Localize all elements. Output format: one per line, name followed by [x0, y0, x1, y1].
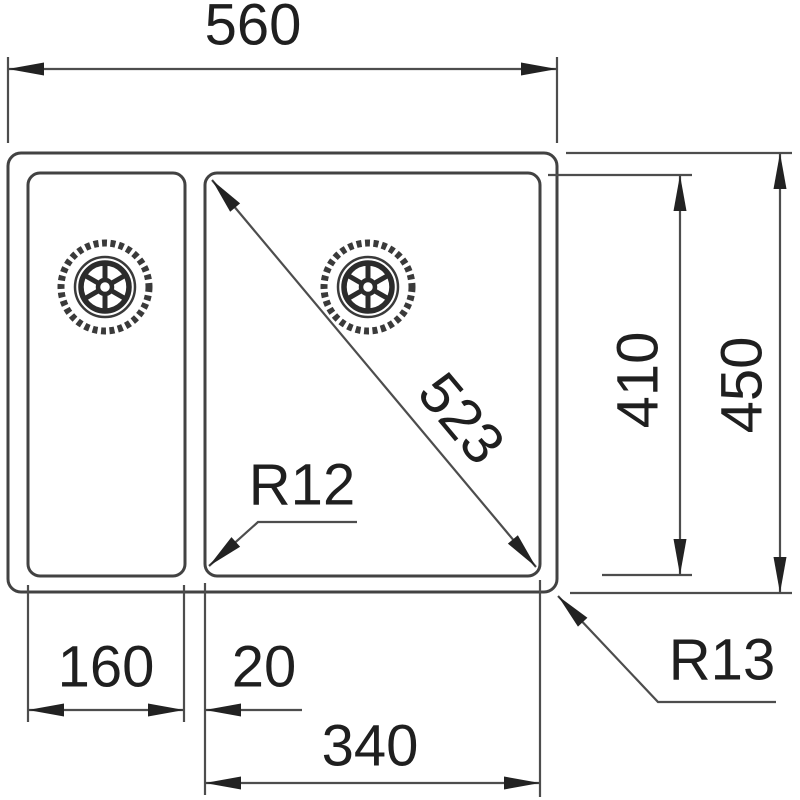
arrowhead-right-icon: [504, 777, 540, 790]
arrowhead-left-icon: [205, 777, 241, 790]
dim-label-overall-width: 560: [205, 0, 302, 57]
dim-label-bowl-diagonal: 523: [405, 361, 517, 477]
arrowhead-left-icon: [8, 63, 44, 76]
sink-outlines: [8, 153, 557, 592]
arrowhead-up-icon: [674, 175, 687, 211]
main-bowl-drain: [324, 243, 412, 331]
dim-overall-width: 560: [8, 0, 557, 143]
dim-label-left-bowl-width: 160: [58, 634, 155, 699]
dim-label-outer-radius: R13: [669, 627, 775, 692]
dim-label-overall-depth: 450: [709, 337, 774, 434]
arrowhead-left-icon: [28, 704, 64, 717]
dim-divider-width: 20: [205, 583, 302, 795]
arrowhead-up-icon: [774, 153, 787, 189]
sink-outer-edge: [8, 153, 557, 592]
arrowhead-left-icon: [205, 704, 241, 717]
annotation-outer-radius: R13: [553, 592, 776, 702]
dim-bowl-depth: 410: [548, 175, 692, 575]
left-bowl-outline: [28, 173, 185, 576]
dim-label-main-bowl-width: 340: [322, 713, 419, 778]
annotation-inner-radius: R12: [205, 452, 357, 571]
dim-label-inner-radius: R12: [249, 452, 355, 517]
dim-label-bowl-depth: 410: [605, 332, 670, 429]
arrowhead-right-icon: [521, 63, 557, 76]
dim-label-divider-width: 20: [232, 634, 297, 699]
dim-left-bowl-width: 160: [28, 585, 184, 722]
arrowhead-down-icon: [674, 539, 687, 575]
arrowhead-right-icon: [148, 704, 184, 717]
left-bowl-drain: [61, 243, 149, 331]
arrowhead-down-icon: [774, 557, 787, 593]
sink-dimension-diagram: 560 450 410 523 160 20: [0, 0, 800, 800]
technical-drawing-canvas: 560 450 410 523 160 20: [0, 0, 800, 800]
